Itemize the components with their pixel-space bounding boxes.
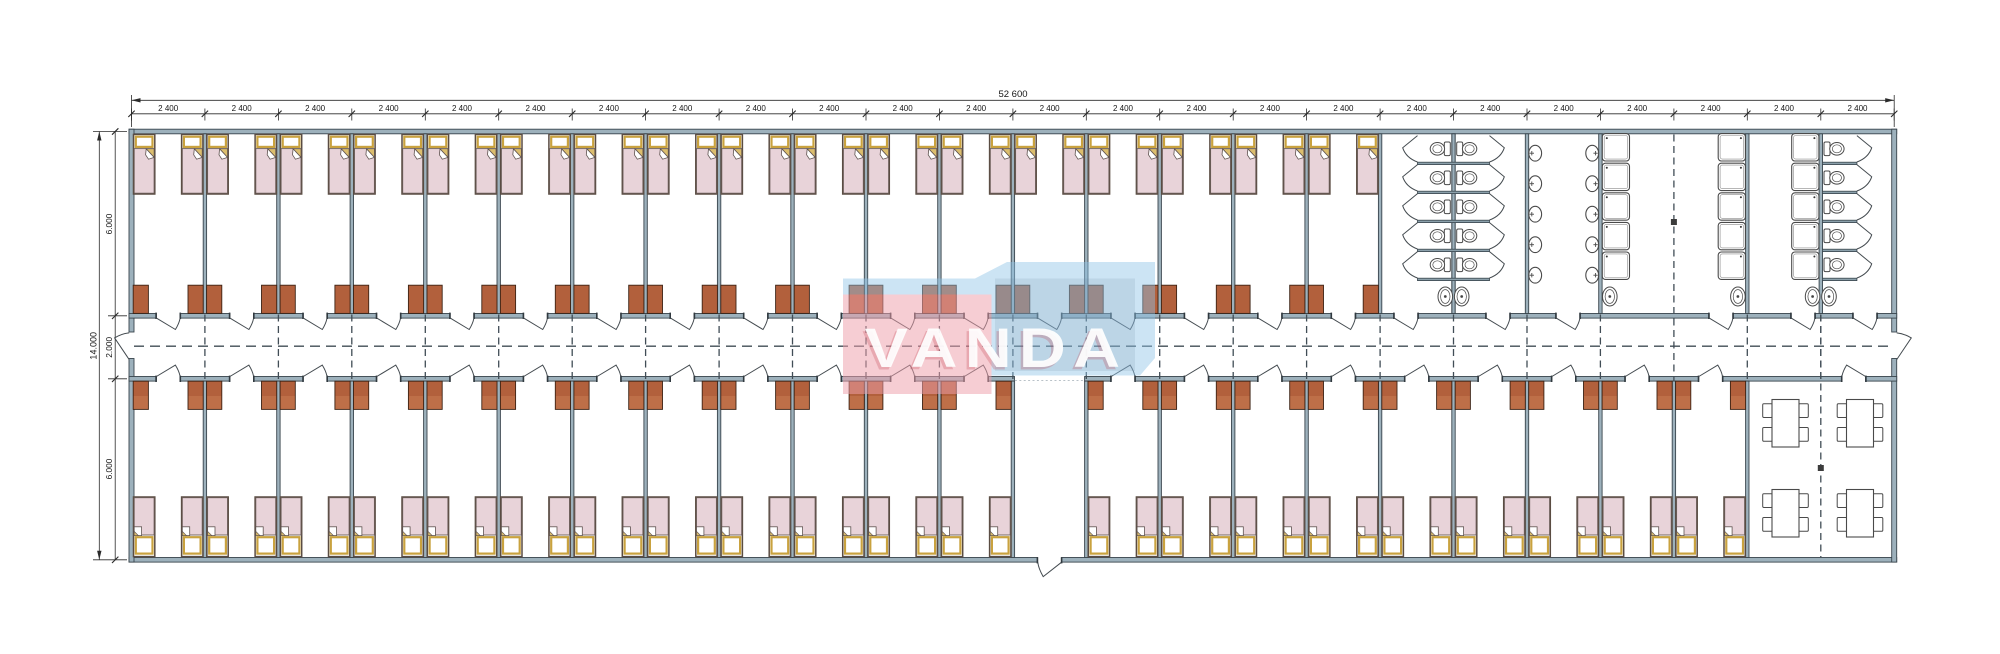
svg-text:2 400: 2 400 bbox=[1333, 104, 1354, 113]
svg-text:2 400: 2 400 bbox=[379, 104, 400, 113]
svg-text:2 400: 2 400 bbox=[599, 104, 620, 113]
svg-text:2 400: 2 400 bbox=[158, 104, 179, 113]
svg-text:2 400: 2 400 bbox=[1040, 104, 1061, 113]
svg-text:2 400: 2 400 bbox=[1701, 104, 1722, 113]
svg-text:2 400: 2 400 bbox=[1407, 104, 1428, 113]
svg-text:52 600: 52 600 bbox=[998, 89, 1027, 100]
svg-text:6.000: 6.000 bbox=[104, 458, 114, 479]
svg-text:2 400: 2 400 bbox=[1113, 104, 1134, 113]
svg-text:2 400: 2 400 bbox=[1774, 104, 1795, 113]
svg-text:2 400: 2 400 bbox=[1847, 104, 1868, 113]
svg-text:2 400: 2 400 bbox=[893, 104, 914, 113]
svg-text:2 400: 2 400 bbox=[1480, 104, 1501, 113]
svg-text:VANDA: VANDA bbox=[865, 316, 1128, 379]
svg-text:2 400: 2 400 bbox=[819, 104, 840, 113]
svg-text:14.000: 14.000 bbox=[89, 332, 99, 360]
svg-text:2 400: 2 400 bbox=[232, 104, 253, 113]
svg-text:2 400: 2 400 bbox=[1186, 104, 1207, 113]
svg-text:2 400: 2 400 bbox=[966, 104, 987, 113]
svg-text:2 400: 2 400 bbox=[525, 104, 546, 113]
svg-text:2 400: 2 400 bbox=[452, 104, 473, 113]
svg-text:2 400: 2 400 bbox=[1627, 104, 1648, 113]
svg-text:2 400: 2 400 bbox=[305, 104, 326, 113]
svg-text:2.000: 2.000 bbox=[104, 337, 114, 358]
svg-text:2 400: 2 400 bbox=[1554, 104, 1575, 113]
svg-text:2 400: 2 400 bbox=[746, 104, 767, 113]
svg-text:2 400: 2 400 bbox=[1260, 104, 1281, 113]
svg-text:6.000: 6.000 bbox=[104, 213, 114, 234]
svg-text:2 400: 2 400 bbox=[672, 104, 693, 113]
